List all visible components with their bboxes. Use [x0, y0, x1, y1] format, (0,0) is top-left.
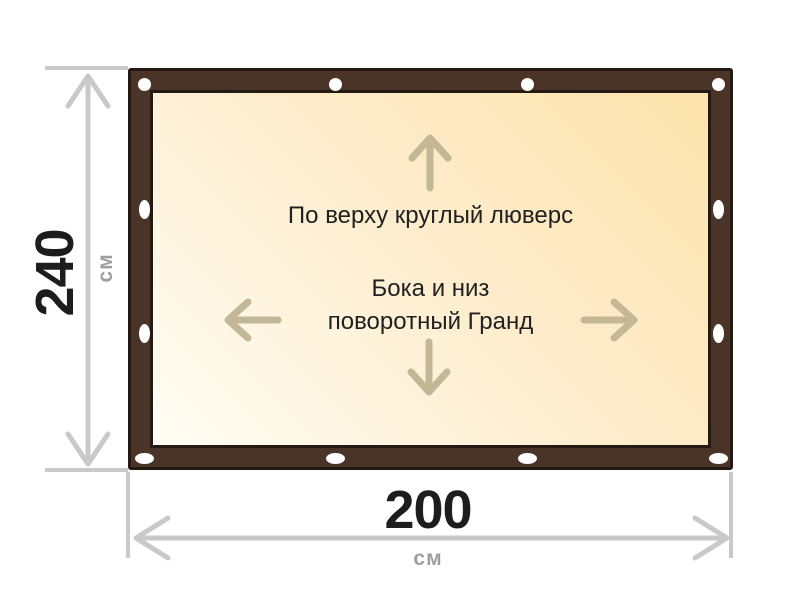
grommet-top-1: [138, 78, 151, 91]
grommet-top-4: [712, 78, 725, 91]
grommet-left-2: [139, 324, 150, 343]
grommet-bottom-2: [326, 453, 345, 464]
sides-bottom-note-line1: Бока и низ: [150, 272, 711, 305]
width-dim-value: 200: [384, 479, 471, 541]
grommet-bottom-4: [709, 453, 728, 464]
grommet-top-3: [521, 78, 534, 91]
height-dim-value: 240: [24, 229, 86, 316]
grommet-bottom-3: [518, 453, 537, 464]
sides-bottom-note-line2: поворотный Гранд: [150, 305, 711, 338]
grommet-bottom-1: [135, 453, 154, 464]
size-diagram: По верху круглый люверс Бока и низ повор…: [0, 0, 800, 600]
top-edge-note: По верху круглый люверс: [150, 199, 711, 232]
grommet-right-1: [713, 200, 724, 219]
width-dim-unit: см: [413, 547, 442, 571]
sides-bottom-note: Бока и низ поворотный Гранд: [150, 272, 711, 338]
grommet-top-2: [329, 78, 342, 91]
arrow-down-icon: [403, 336, 455, 398]
arrow-up-icon: [404, 132, 456, 194]
height-dim-unit: см: [94, 253, 118, 282]
grommet-left-1: [139, 200, 150, 219]
grommet-right-2: [713, 324, 724, 343]
